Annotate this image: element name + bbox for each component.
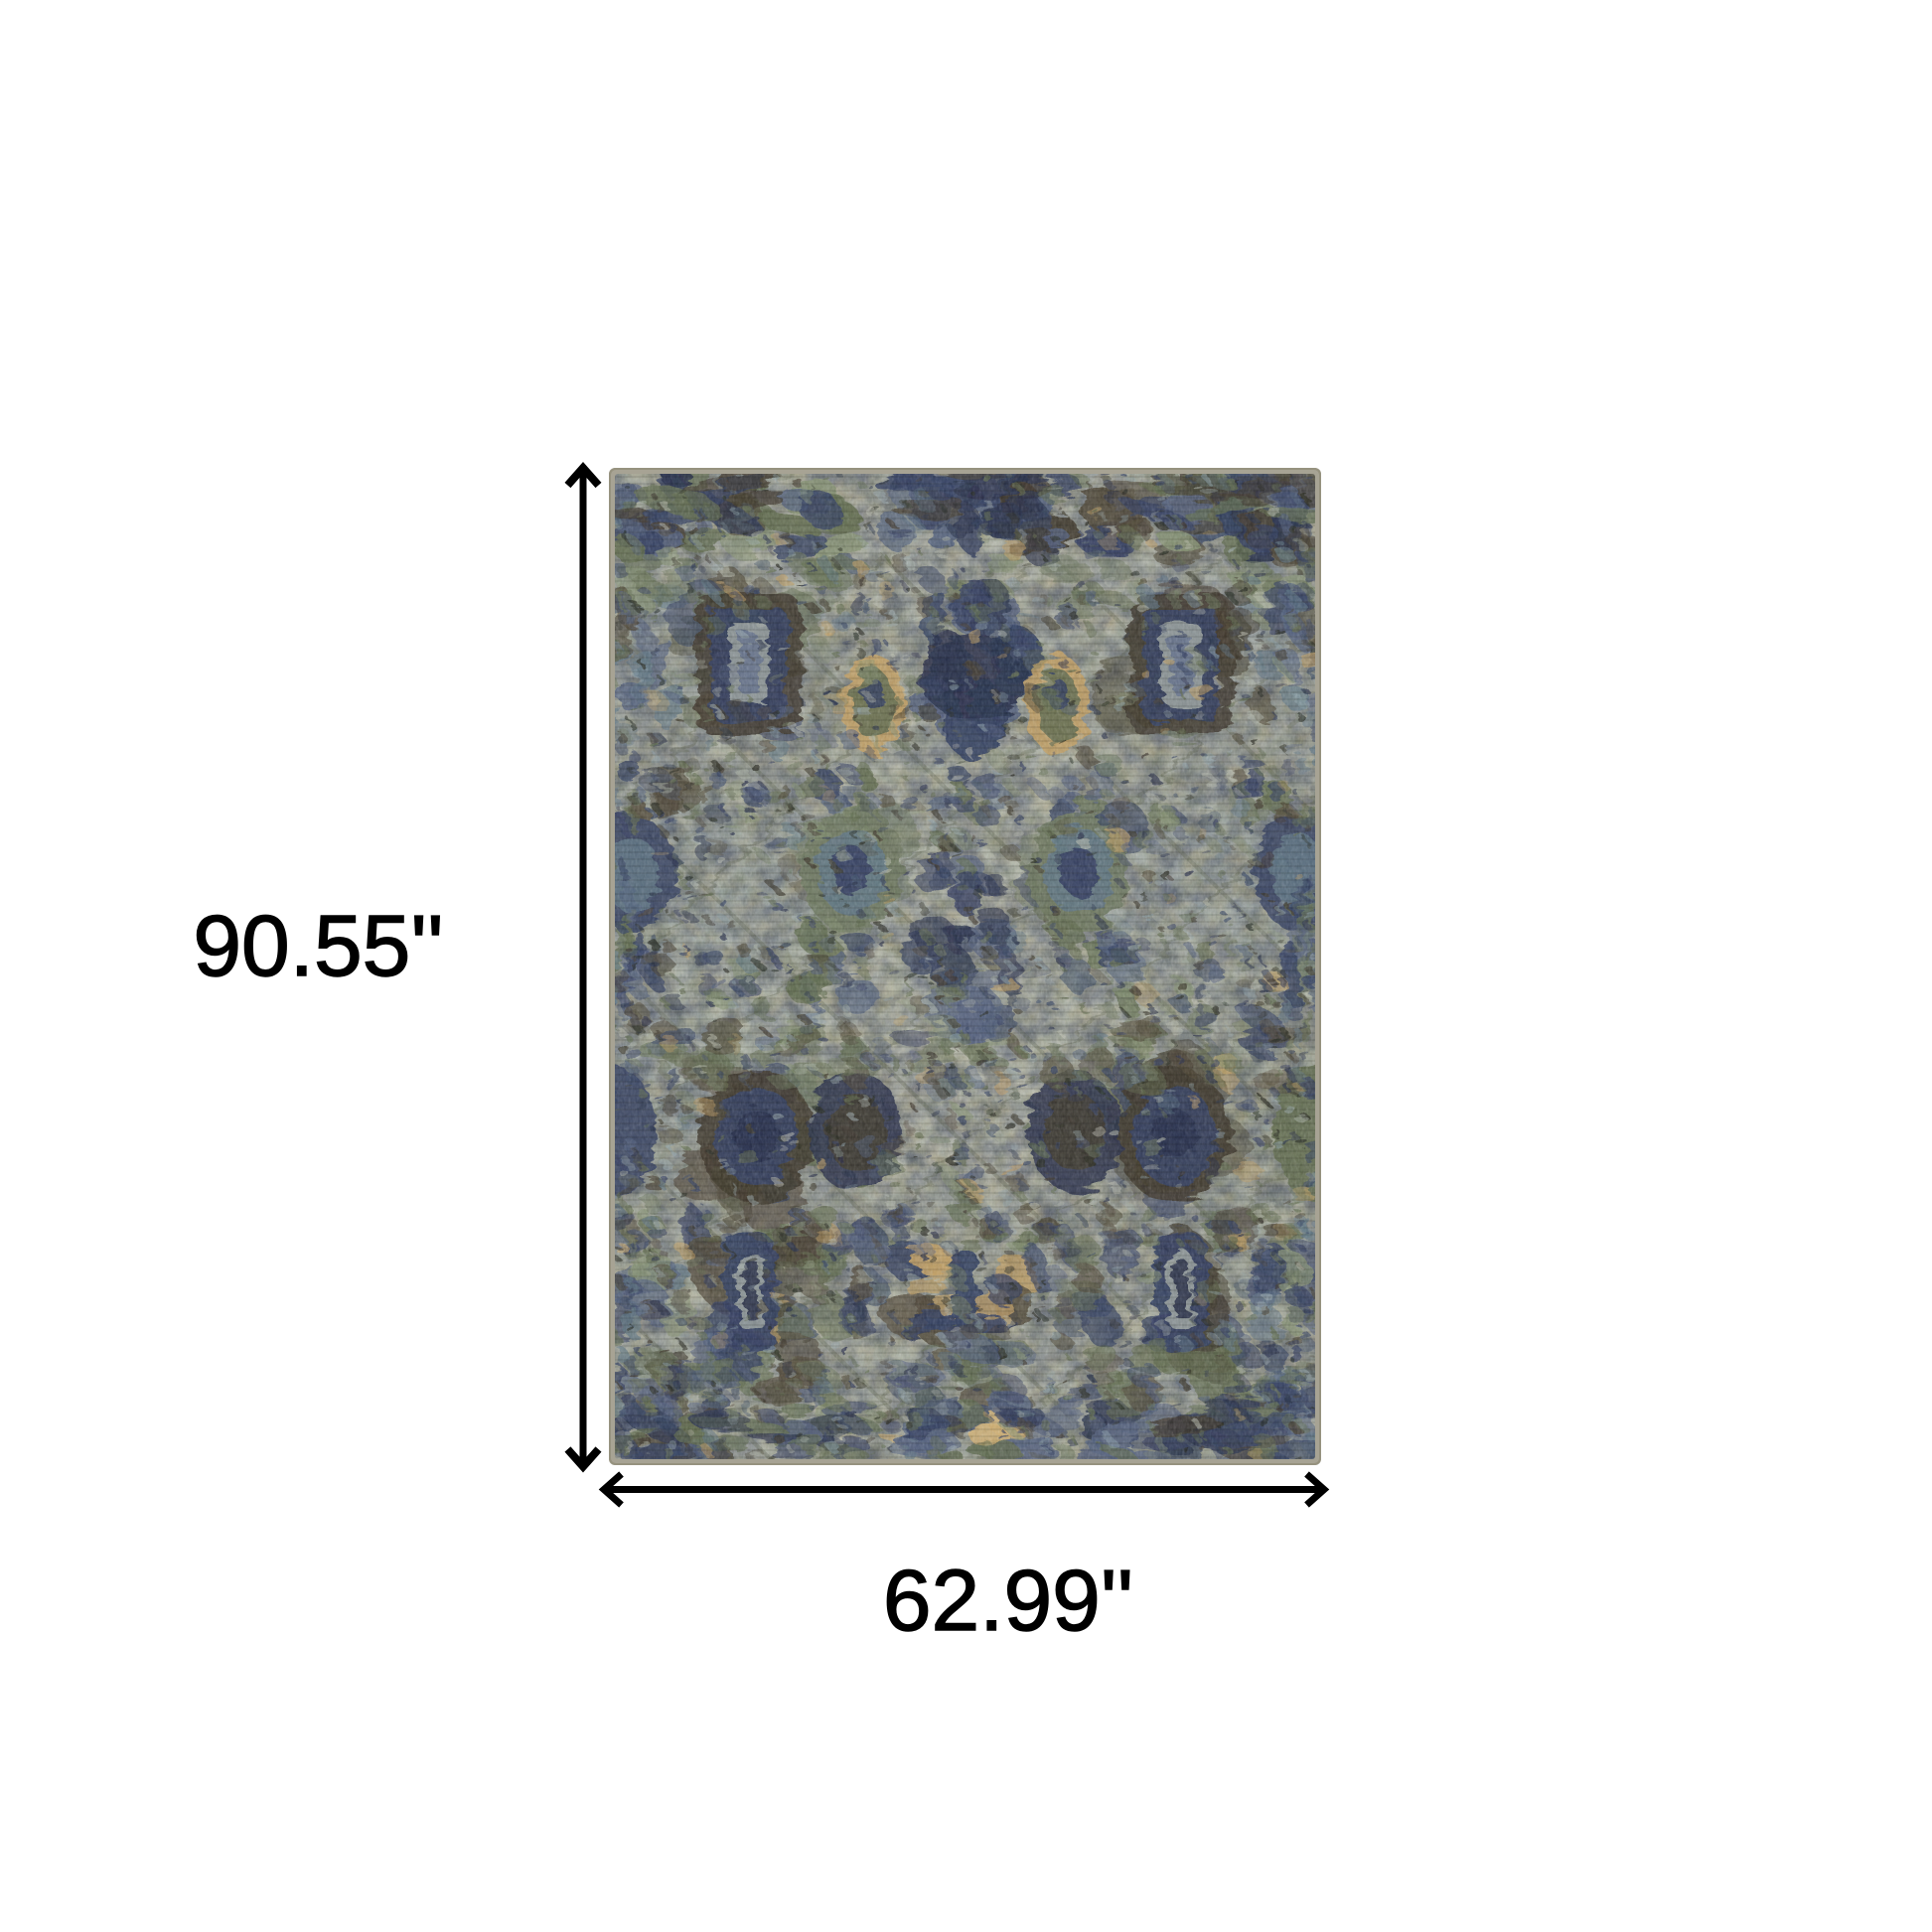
svg-text:62.99'': 62.99'' xyxy=(883,1552,1133,1649)
svg-text:90.55'': 90.55'' xyxy=(193,897,443,994)
